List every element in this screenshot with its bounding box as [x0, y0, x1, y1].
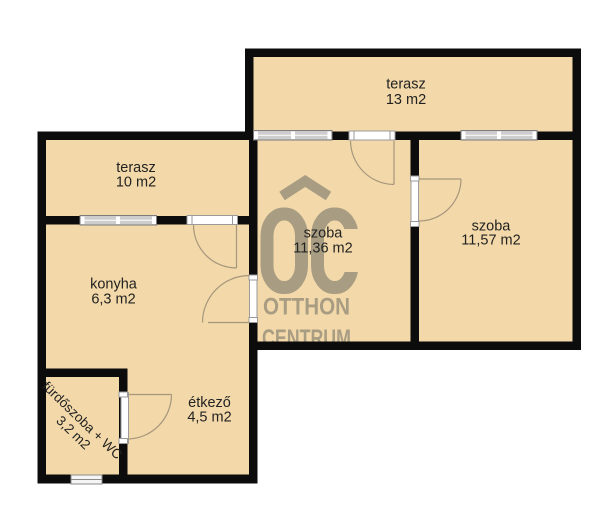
svg-text:4,5 m2: 4,5 m2 [187, 410, 231, 426]
svg-text:6,3 m2: 6,3 m2 [91, 292, 135, 308]
svg-text:11,36 m2: 11,36 m2 [293, 241, 352, 257]
svg-text:11,57 m2: 11,57 m2 [461, 233, 520, 249]
svg-text:szoba: szoba [304, 226, 344, 242]
svg-text:konyha: konyha [90, 277, 138, 293]
svg-text:OTTHON: OTTHON [263, 294, 350, 321]
svg-text:terasz: terasz [386, 77, 426, 93]
svg-text:13 m2: 13 m2 [386, 92, 426, 108]
svg-text:10 m2: 10 m2 [116, 175, 156, 191]
